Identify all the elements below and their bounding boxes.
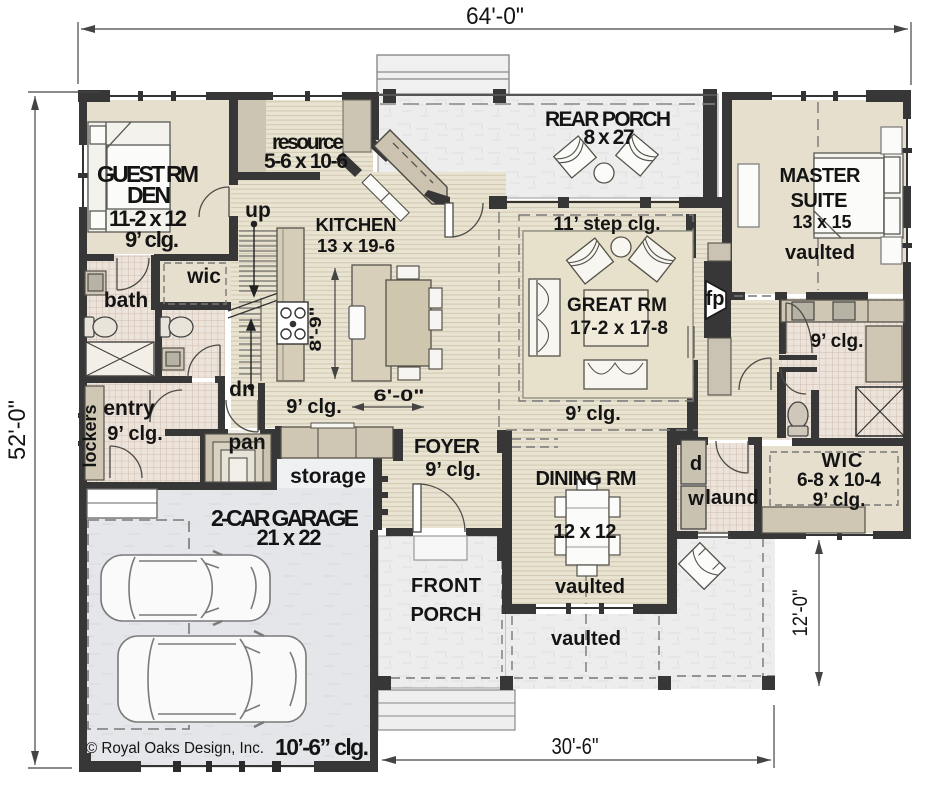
svg-text:WIC: WIC — [822, 450, 863, 472]
svg-text:13 x 19-6: 13 x 19-6 — [317, 235, 395, 256]
svg-text:wic: wic — [186, 265, 221, 288]
svg-text:pan: pan — [228, 431, 265, 454]
svg-text:9’ clg.: 9’ clg. — [811, 331, 864, 352]
svg-text:lockers: lockers — [80, 404, 100, 467]
svg-text:8 x 27: 8 x 27 — [584, 126, 635, 149]
svg-text:vaulted: vaulted — [785, 242, 855, 264]
svg-text:13 x 15: 13 x 15 — [793, 212, 852, 232]
svg-text:PORCH: PORCH — [411, 604, 482, 626]
svg-text:vaulted: vaulted — [555, 576, 625, 598]
svg-text:64'-0": 64'-0" — [466, 3, 524, 30]
svg-text:9’ clg.: 9’ clg. — [813, 490, 866, 511]
svg-text:vaulted: vaulted — [551, 628, 621, 650]
svg-text:laund: laund — [705, 487, 758, 509]
svg-text:17-2 x 17-8: 17-2 x 17-8 — [570, 318, 668, 339]
svg-text:30'-6": 30'-6" — [552, 733, 599, 759]
svg-text:bath: bath — [104, 289, 148, 312]
svg-text:9’ clg.: 9’ clg. — [425, 459, 481, 481]
svg-text:d: d — [690, 453, 702, 475]
svg-text:10’-6” clg.: 10’-6” clg. — [275, 734, 369, 760]
svg-text:DEN: DEN — [127, 182, 171, 208]
svg-text:9’ clg.: 9’ clg. — [286, 396, 342, 418]
svg-text:6'-0": 6'-0" — [374, 386, 425, 405]
svg-text:KITCHEN: KITCHEN — [316, 214, 397, 235]
svg-text:9’ clg.: 9’ clg. — [125, 227, 179, 252]
svg-text:6-8 x 10-4: 6-8 x 10-4 — [797, 470, 881, 491]
svg-text:SUITE: SUITE — [791, 190, 848, 212]
svg-text:FRONT: FRONT — [411, 575, 481, 597]
svg-text:w: w — [687, 488, 704, 510]
svg-text:© Royal Oaks Design, Inc.: © Royal Oaks Design, Inc. — [86, 740, 264, 757]
svg-text:5-6 x 10-6: 5-6 x 10-6 — [264, 150, 348, 173]
svg-text:9’ clg.: 9’ clg. — [565, 403, 621, 425]
svg-text:GREAT RM: GREAT RM — [567, 295, 667, 316]
svg-text:12 x 12: 12 x 12 — [554, 521, 617, 543]
svg-text:DINING RM: DINING RM — [536, 468, 637, 490]
svg-text:8'-9": 8'-9" — [306, 307, 325, 352]
svg-text:9’ clg.: 9’ clg. — [107, 423, 163, 445]
svg-text:52'-0": 52'-0" — [4, 400, 31, 460]
svg-text:storage: storage — [290, 465, 366, 488]
svg-text:MASTER: MASTER — [780, 165, 862, 187]
svg-text:up: up — [245, 199, 271, 222]
svg-text:fp: fp — [706, 288, 725, 310]
svg-text:12'-0": 12'-0" — [789, 590, 812, 637]
svg-text:entry: entry — [103, 397, 155, 420]
svg-text:21 x 22: 21 x 22 — [257, 525, 322, 550]
svg-text:FOYER: FOYER — [414, 436, 481, 458]
svg-text:11’ step clg.: 11’ step clg. — [554, 214, 661, 235]
svg-text:dn: dn — [229, 378, 255, 401]
